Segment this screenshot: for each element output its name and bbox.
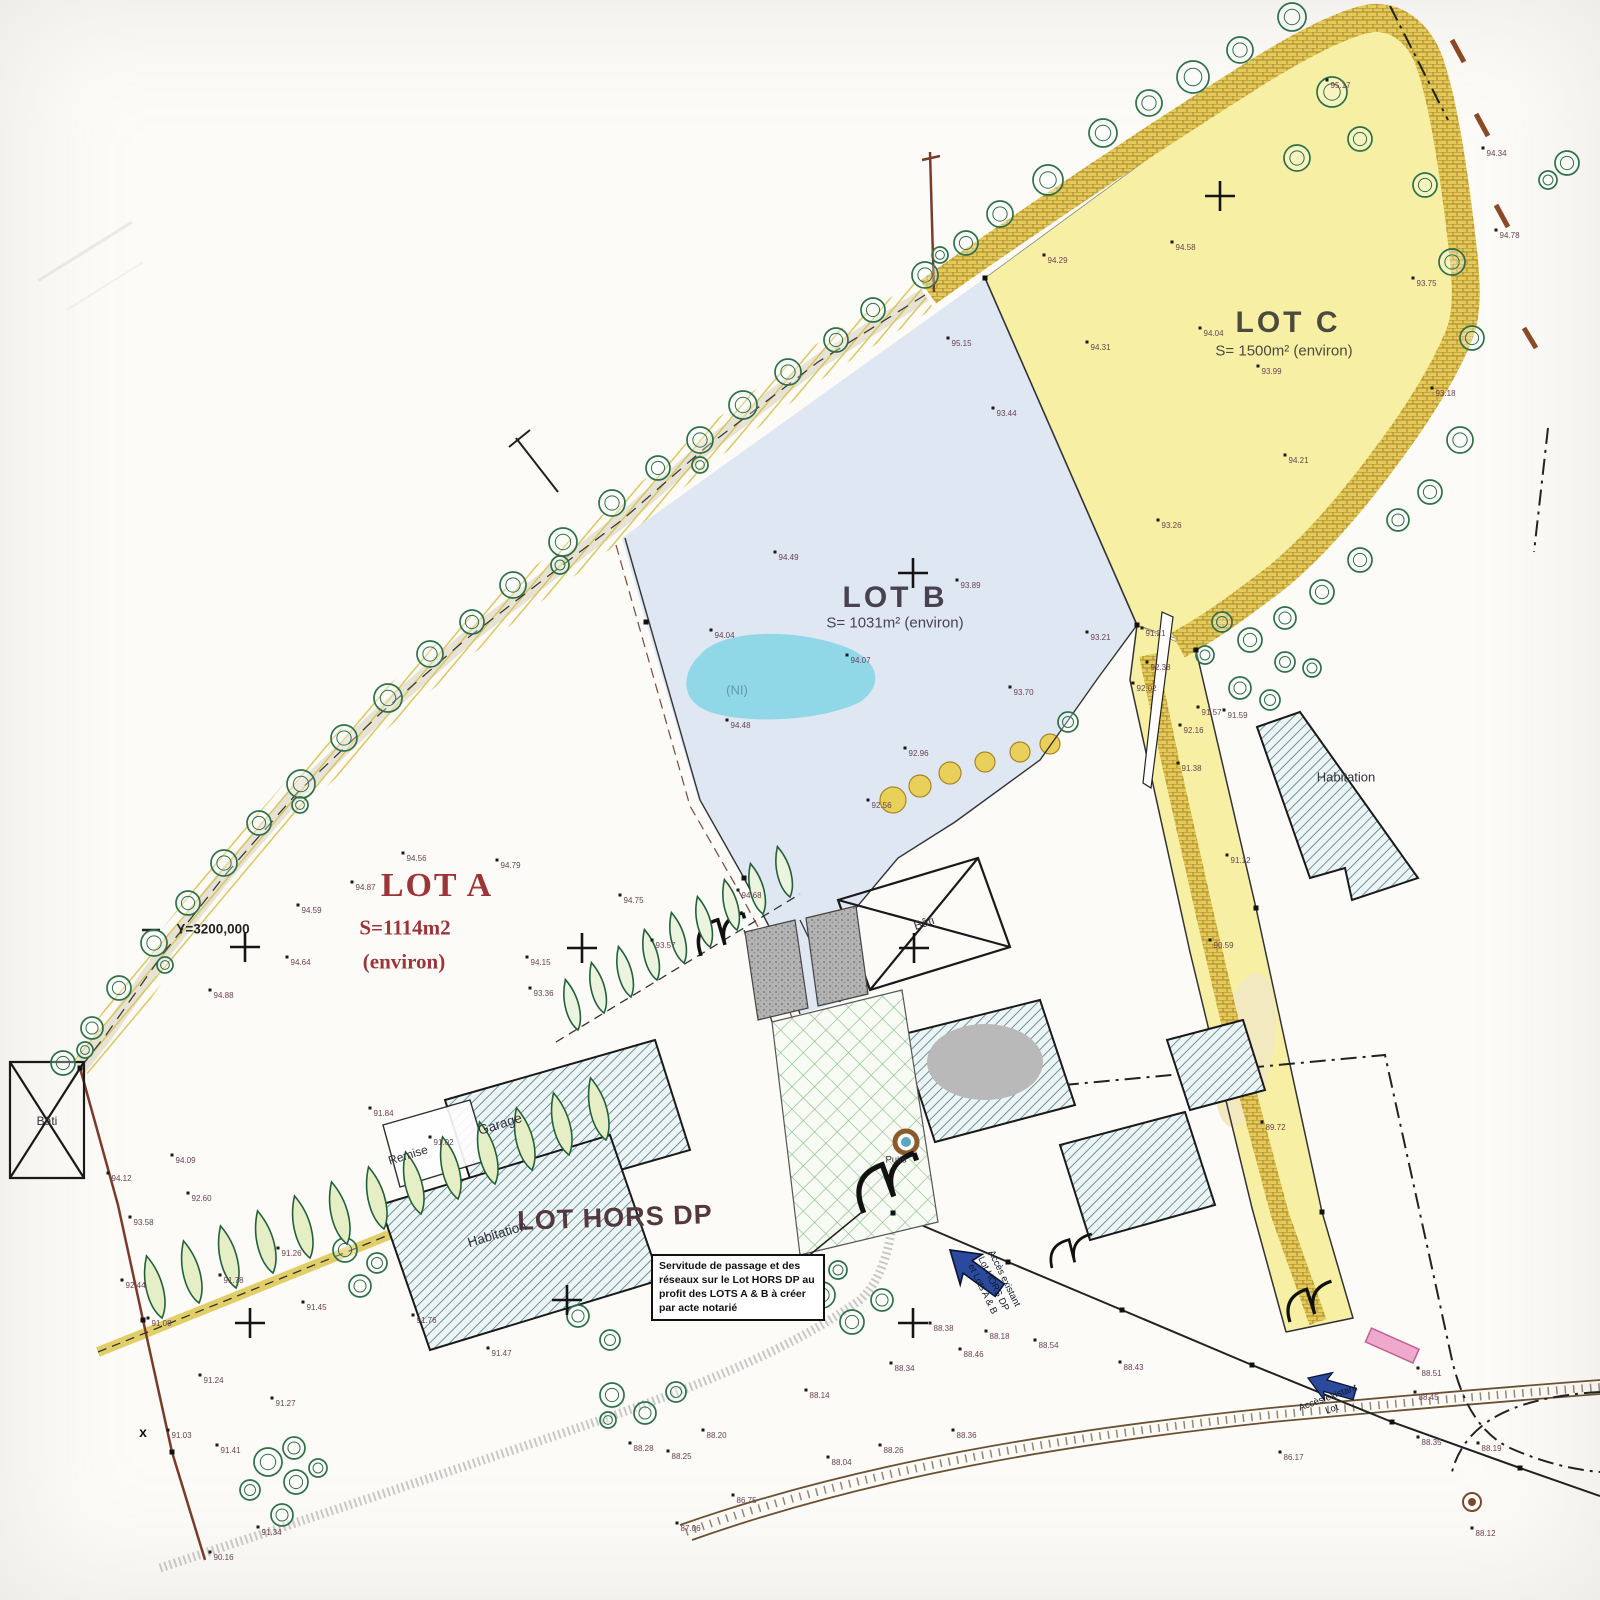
survey-point-marker: [141, 1318, 146, 1323]
svg-text:88.46: 88.46: [964, 1350, 985, 1359]
tree-icon: [551, 556, 569, 574]
survey-point-marker: [891, 1211, 896, 1216]
spot-elevation: 94.34: [1482, 147, 1508, 159]
servitude-note-box: Servitude de passage et des réseaux sur …: [651, 1254, 825, 1321]
spot-elevation: 88.45: [1414, 1391, 1440, 1403]
tree-icon: [254, 1448, 282, 1476]
tree-icon: [1387, 509, 1409, 531]
spot-elevation: 91.76: [412, 1314, 438, 1326]
tree-icon: [1275, 652, 1295, 672]
svg-text:94.64: 94.64: [291, 958, 312, 967]
tree-icon: [692, 457, 708, 473]
spot-elevation: 88.18: [985, 1330, 1011, 1342]
svg-text:92.02: 92.02: [1137, 684, 1158, 693]
svg-text:93.21: 93.21: [1091, 633, 1112, 642]
tree-icon: [932, 247, 948, 263]
svg-text:94.87: 94.87: [356, 883, 377, 892]
courtyard-lattice: [772, 990, 938, 1255]
spot-elevation: 91.24: [199, 1374, 225, 1386]
svg-text:88.54: 88.54: [1039, 1341, 1060, 1350]
svg-text:88.43: 88.43: [1124, 1363, 1145, 1372]
svg-text:94.78: 94.78: [1500, 231, 1521, 240]
tree-icon: [599, 490, 625, 516]
tree-icon: [1229, 677, 1251, 699]
svg-text:94.88: 94.88: [214, 991, 235, 1000]
tree-icon: [1413, 173, 1437, 197]
tbar-mark: [509, 430, 558, 492]
spot-elevation: 88.34: [890, 1362, 916, 1374]
spot-elevation: 88.38: [929, 1322, 955, 1334]
spot-elevation: 94.59: [297, 904, 323, 916]
svg-text:94.29: 94.29: [1048, 256, 1069, 265]
svg-text:94.49: 94.49: [779, 553, 800, 562]
svg-text:94.31: 94.31: [1091, 343, 1112, 352]
spot-elevation: 86.17: [1279, 1451, 1305, 1463]
tree-icon: [1303, 659, 1321, 677]
svg-text:93.26: 93.26: [1162, 521, 1183, 530]
spot-elevation: 90.16: [209, 1551, 235, 1563]
gate-pink-rect: [1365, 1328, 1419, 1363]
spot-elevation: 88.36: [952, 1429, 978, 1441]
survey-point-marker: [742, 876, 747, 881]
spot-elevation: 94.64: [286, 956, 312, 968]
svg-text:92.96: 92.96: [909, 749, 930, 758]
svg-text:91.21: 91.21: [1146, 629, 1167, 638]
tree-icon: [1284, 145, 1310, 171]
grid-cross-marker: [898, 1308, 928, 1338]
cypress-tree-icon: [612, 945, 638, 999]
tree-icon: [634, 1402, 656, 1424]
tree-icon: [1460, 326, 1484, 350]
redaction-blob-gray: [927, 1024, 1043, 1100]
tree-icon: [1089, 119, 1117, 147]
svg-text:91.27: 91.27: [276, 1399, 297, 1408]
svg-text:88.19: 88.19: [1482, 1444, 1503, 1453]
svg-text:91.41: 91.41: [221, 1446, 242, 1455]
spot-elevation: 88.26: [879, 1444, 905, 1456]
svg-text:88.04: 88.04: [832, 1458, 853, 1467]
tree-icon: [549, 528, 577, 556]
tree-icon: [1227, 37, 1253, 63]
svg-text:94.48: 94.48: [731, 721, 752, 730]
svg-text:91.57: 91.57: [1202, 708, 1223, 717]
svg-text:91.02: 91.02: [434, 1138, 455, 1147]
survey-point-marker: [78, 1066, 83, 1071]
tree-icon: [1274, 607, 1296, 629]
building-habitation-east: [1257, 712, 1418, 900]
svg-text:88.28: 88.28: [634, 1444, 655, 1453]
svg-text:88.25: 88.25: [672, 1452, 693, 1461]
svg-text:88.35: 88.35: [1422, 1438, 1443, 1447]
tree-icon: [309, 1459, 327, 1477]
svg-text:91.38: 91.38: [1182, 764, 1203, 773]
spot-elevation: 91.47: [487, 1347, 513, 1359]
svg-text:87.06: 87.06: [681, 1524, 702, 1533]
cypress-tree-icon: [718, 878, 744, 932]
svg-text:94.15: 94.15: [531, 958, 552, 967]
tree-icon: [460, 610, 484, 634]
tree-icon: [646, 456, 670, 480]
grid-cross-marker: [899, 933, 929, 963]
tree-icon: [871, 1289, 893, 1311]
tree-icon: [211, 850, 237, 876]
svg-text:91.26: 91.26: [282, 1249, 303, 1258]
survey-point-marker: [1135, 623, 1140, 628]
svg-text:88.36: 88.36: [957, 1431, 978, 1440]
svg-text:94.56: 94.56: [407, 854, 428, 863]
svg-text:94.34: 94.34: [1487, 149, 1508, 158]
svg-text:88.20: 88.20: [707, 1431, 728, 1440]
tree-icon: [954, 231, 978, 255]
spot-elevation: 91.26: [277, 1247, 303, 1259]
road-edge-lower: [692, 1394, 1600, 1540]
road-hatch: [686, 1387, 1600, 1532]
svg-text:88.12: 88.12: [1476, 1529, 1497, 1538]
tree-icon: [141, 930, 167, 956]
tree-icon: [987, 201, 1013, 227]
spot-elevation: 94.79: [496, 859, 522, 871]
svg-text:88.45: 88.45: [1419, 1393, 1440, 1402]
svg-text:93.18: 93.18: [1436, 389, 1457, 398]
tree-icon: [775, 359, 801, 385]
tree-icon: [912, 262, 938, 288]
tree-icon: [176, 891, 200, 915]
tree-icon: [824, 328, 848, 352]
svg-text:94.07: 94.07: [851, 656, 872, 665]
cypress-tree-icon: [175, 1239, 207, 1305]
grid-cross-marker: [230, 932, 260, 962]
spot-elevation: 91.84: [369, 1107, 395, 1119]
tree-icon: [367, 1253, 387, 1273]
spot-elevation: 94.09: [171, 1154, 197, 1166]
survey-point-marker: [170, 1450, 175, 1455]
tree-icon: [600, 1383, 624, 1407]
tree-icon: [271, 1504, 293, 1526]
spot-elevation: 93.58: [129, 1216, 155, 1228]
svg-text:94.68: 94.68: [742, 891, 763, 900]
tree-icon: [861, 298, 885, 322]
svg-text:88.18: 88.18: [990, 1332, 1011, 1341]
svg-text:90.59: 90.59: [1214, 941, 1235, 950]
spot-elevation: 88.12: [1471, 1527, 1497, 1539]
svg-text:93.44: 93.44: [997, 409, 1018, 418]
svg-text:91.12: 91.12: [1231, 856, 1252, 865]
svg-text:94.75: 94.75: [624, 896, 645, 905]
svg-text:86.17: 86.17: [1284, 1453, 1305, 1462]
svg-text:94.09: 94.09: [176, 1156, 197, 1165]
survey-point-marker: [1254, 906, 1259, 911]
spot-elevation: 88.54: [1034, 1339, 1060, 1351]
tree-icon: [1033, 165, 1063, 195]
tree-icon: [1418, 480, 1442, 504]
svg-text:94.12: 94.12: [112, 1174, 133, 1183]
svg-text:92.38: 92.38: [1151, 663, 1172, 672]
svg-text:94.59: 94.59: [302, 906, 323, 915]
spot-elevation: 88.04: [827, 1456, 853, 1468]
road-edge-upper: [680, 1380, 1600, 1525]
svg-text:95.17: 95.17: [1331, 81, 1352, 90]
svg-text:88.34: 88.34: [895, 1364, 916, 1373]
svg-text:92.60: 92.60: [192, 1194, 213, 1203]
tree-icon: [840, 1310, 864, 1334]
spot-elevation: 94.87: [351, 881, 377, 893]
svg-text:88.26: 88.26: [884, 1446, 905, 1455]
tree-icon: [1555, 151, 1579, 175]
spot-elevation: 88.28: [629, 1442, 655, 1454]
tree-icon: [1136, 90, 1162, 116]
spot-elevation: 86.75: [732, 1494, 758, 1506]
tree-icon: [1238, 628, 1262, 652]
tree-icon: [1310, 580, 1334, 604]
tree-icon: [287, 770, 315, 798]
svg-text:92.56: 92.56: [872, 801, 893, 810]
tree-icon: [284, 1470, 308, 1494]
tree-icon: [417, 641, 443, 667]
bati-west-symbol: [10, 1062, 84, 1178]
tree-icon: [687, 427, 713, 453]
svg-text:91.76: 91.76: [417, 1316, 438, 1325]
cypress-tree-icon: [665, 911, 691, 965]
tree-icon: [829, 1261, 847, 1279]
tree-icon: [666, 1382, 686, 1402]
svg-text:93.57: 93.57: [656, 941, 677, 950]
tree-icon: [729, 391, 757, 419]
spot-elevation: 94.78: [1495, 229, 1521, 241]
tree-icon: [247, 811, 271, 835]
svg-text:86.75: 86.75: [737, 1496, 758, 1505]
spot-elevation: 91.78: [219, 1274, 245, 1286]
svg-text:90.16: 90.16: [214, 1553, 235, 1562]
spot-elevation: 91.45: [302, 1301, 328, 1313]
survey-point-marker: [1194, 648, 1199, 653]
grid-cross-marker: [235, 1308, 265, 1338]
spot-elevation: 88.51: [1417, 1367, 1443, 1379]
spot-elevation: 94.75: [619, 894, 645, 906]
spot-elevation: 88.46: [959, 1348, 985, 1360]
spot-elevation: 91.27: [271, 1397, 297, 1409]
svg-text:91.03: 91.03: [172, 1431, 193, 1440]
survey-point-marker: [1390, 1420, 1395, 1425]
survey-point-marker: [1250, 1363, 1255, 1368]
svg-text:88.14: 88.14: [810, 1391, 831, 1400]
svg-text:91.84: 91.84: [374, 1109, 395, 1118]
tree-icon: [107, 976, 131, 1000]
spot-elevation: 94.15: [526, 956, 552, 968]
spot-elevation: 94.88: [209, 989, 235, 1001]
svg-text:91.78: 91.78: [224, 1276, 245, 1285]
cypress-tree-icon: [249, 1209, 281, 1275]
svg-text:88.38: 88.38: [934, 1324, 955, 1333]
tree-icon: [600, 1412, 616, 1428]
tree-icon: [1348, 127, 1372, 151]
svg-text:93.58: 93.58: [134, 1218, 155, 1227]
svg-text:93.75: 93.75: [1417, 279, 1438, 288]
grid-cross-marker: [567, 933, 597, 963]
svg-text:93.36: 93.36: [534, 989, 555, 998]
tree-icon: [1539, 171, 1557, 189]
building-east-2: [1060, 1112, 1215, 1240]
survey-plan-canvas: 95.1794.3494.7894.5894.0493.9993.7594.31…: [0, 0, 1600, 1600]
svg-text:88.51: 88.51: [1422, 1369, 1443, 1378]
spot-elevation: 88.14: [805, 1389, 831, 1401]
survey-point-marker: [983, 276, 988, 281]
hydrant-icon: [1463, 1493, 1481, 1511]
tree-icon: [1348, 548, 1372, 572]
spot-elevation: 88.20: [702, 1429, 728, 1441]
tree-icon: [157, 957, 173, 973]
tree-icon: [349, 1275, 371, 1297]
spot-elevation: 93.36: [529, 987, 555, 999]
spot-elevation: 87.06: [676, 1522, 702, 1534]
svg-text:93.89: 93.89: [961, 581, 982, 590]
tree-icon: [1058, 712, 1078, 732]
spot-elevation: 94.56: [402, 852, 428, 864]
svg-text:94.04: 94.04: [715, 631, 736, 640]
tree-icon: [600, 1330, 620, 1350]
tree-icon: [1260, 690, 1280, 710]
tree-icon: [77, 1042, 93, 1058]
svg-text:91.45: 91.45: [307, 1303, 328, 1312]
svg-text:91.08: 91.08: [152, 1319, 173, 1328]
cypress-tree-icon: [323, 1180, 355, 1246]
tree-icon: [567, 1305, 589, 1327]
tree-icon: [331, 725, 357, 751]
spot-elevation: 91.03: [167, 1429, 193, 1441]
svg-text:95.15: 95.15: [952, 339, 973, 348]
tree-icon: [51, 1051, 75, 1075]
survey-point-marker: [1518, 1466, 1523, 1471]
svg-text:94.21: 94.21: [1289, 456, 1310, 465]
tree-icon: [500, 572, 526, 598]
survey-point-marker: [1320, 1210, 1325, 1215]
tree-icon: [292, 797, 308, 813]
svg-text:93.70: 93.70: [1014, 688, 1035, 697]
spot-elevation: 92.60: [187, 1192, 213, 1204]
tree-icon: [1439, 249, 1465, 275]
svg-text:93.99: 93.99: [1262, 367, 1283, 376]
svg-text:89.72: 89.72: [1266, 1123, 1287, 1132]
tree-icon: [283, 1437, 305, 1459]
spot-elevation: 88.43: [1119, 1361, 1145, 1373]
svg-text:91.59: 91.59: [1228, 711, 1249, 720]
survey-point-marker: [644, 620, 649, 625]
tree-icon: [1177, 61, 1209, 93]
tree-icon: [374, 684, 402, 712]
svg-text:91.47: 91.47: [492, 1349, 513, 1358]
spot-elevation: 88.19: [1477, 1442, 1503, 1454]
spot-elevation: 91.59: [1223, 709, 1249, 721]
svg-text:94.04: 94.04: [1204, 329, 1225, 338]
survey-point-marker: [1120, 1308, 1125, 1313]
puits-well-icon: [895, 1131, 917, 1153]
svg-text:92.44: 92.44: [126, 1281, 147, 1290]
spot-elevation: 88.35: [1417, 1436, 1443, 1448]
svg-text:92.16: 92.16: [1184, 726, 1205, 735]
tree-icon: [1447, 427, 1473, 453]
survey-plan-page: 95.1794.3494.7894.5894.0493.9993.7594.31…: [0, 0, 1600, 1600]
tree-icon: [1196, 646, 1214, 664]
tree-icon: [1212, 612, 1232, 632]
survey-point-marker: [1006, 1260, 1011, 1265]
spot-elevation: 91.41: [216, 1444, 242, 1456]
tree-icon: [81, 1017, 103, 1039]
spot-elevation: 88.25: [667, 1450, 693, 1462]
svg-text:94.79: 94.79: [501, 861, 522, 870]
tree-icon: [240, 1480, 260, 1500]
tree-icon: [1278, 3, 1306, 31]
svg-text:91.24: 91.24: [204, 1376, 225, 1385]
cypress-tree-icon: [585, 961, 611, 1015]
cypress-tree-icon: [559, 978, 585, 1032]
svg-text:94.58: 94.58: [1176, 243, 1197, 252]
svg-text:91.34: 91.34: [262, 1528, 283, 1537]
cypress-tree-icon: [638, 928, 664, 982]
spot-elevation: 92.44: [121, 1279, 147, 1291]
